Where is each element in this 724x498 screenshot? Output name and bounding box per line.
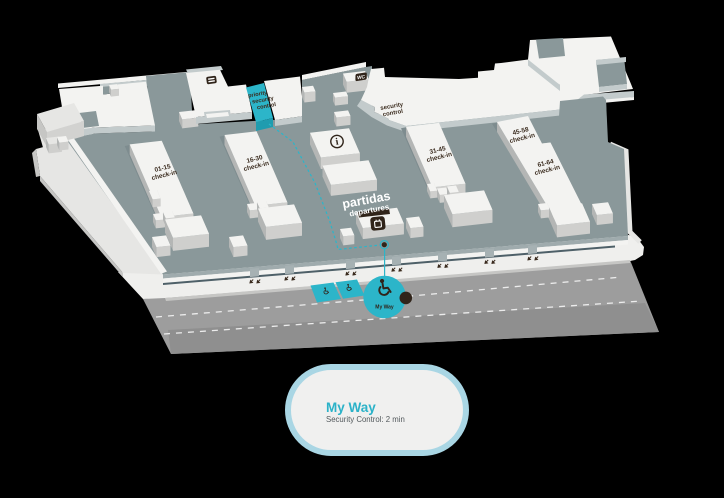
svg-text:My Way: My Way (375, 305, 394, 311)
svg-text:Security Control: 2 min: Security Control: 2 min (326, 415, 405, 424)
svg-text:My Way: My Way (326, 400, 376, 415)
